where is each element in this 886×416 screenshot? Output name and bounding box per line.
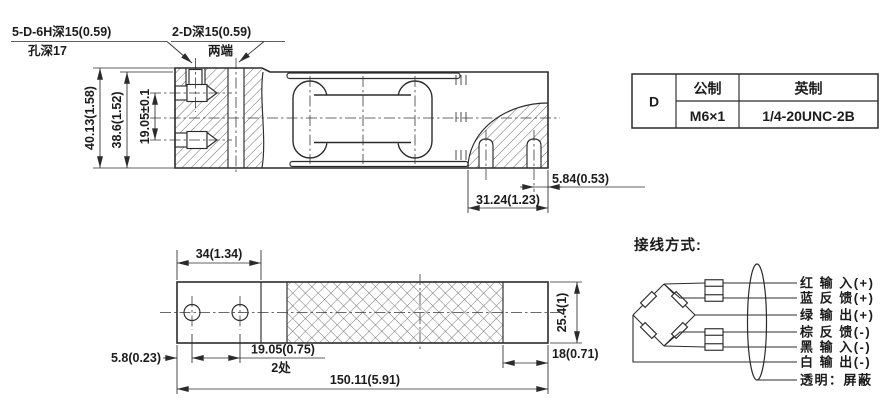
callout-end-holes: 2-D深15(0.59) 两端 <box>171 24 285 62</box>
wire-label-brown-feedback: 棕 反 馈(-) <box>799 325 871 340</box>
dim-body-height: 38.6(1.52) <box>110 92 124 149</box>
dim-edge-to-hole: 5.8(0.23) <box>111 351 161 365</box>
loadcell-drawing-page: 40.13(1.58) 38.6(1.52) 19.05±0.1 31.24(1… <box>0 0 886 416</box>
wheatstone-bridge <box>633 284 695 346</box>
dim-block-length: 34(1.34) <box>196 247 243 261</box>
dim-hole-spacing: 19.05(0.75) <box>251 343 315 357</box>
wiring-diagram: 接线方式: <box>633 236 874 388</box>
callout-end-holes-text: 2-D深15(0.59) <box>172 24 251 39</box>
cable-sheath-ellipse <box>748 264 767 380</box>
callout-tapped-holes-text: 5-D-6H深15(0.59) <box>12 24 111 39</box>
thread-spec-table: D 公制 英制 M6×1 1/4-20UNC-2B <box>632 74 878 128</box>
dim-total-length: 150.11(5.91) <box>330 373 400 387</box>
table-row-label: D <box>649 94 659 110</box>
table-imperial-value: 1/4-20UNC-2B <box>762 108 855 124</box>
dim-hole-offset: 31.24(1.23) <box>476 193 540 207</box>
drawing-canvas: 40.13(1.58) 38.6(1.52) 19.05±0.1 31.24(1… <box>0 0 886 416</box>
table-col-imperial: 英制 <box>794 81 823 97</box>
dim-total-height: 40.13(1.58) <box>83 86 97 150</box>
gauge-lead-marks <box>456 75 466 160</box>
wire-label-blue-feedback: 蓝 反 馈(+) <box>800 291 874 306</box>
callout-tapped-holes: 5-D-6H深15(0.59) 孔深17 <box>11 24 192 63</box>
side-view-drawing: 40.13(1.58) 38.6(1.52) 19.05±0.1 31.24(1… <box>11 24 645 213</box>
wire-label-white-output: 白 输 出(-) <box>800 355 871 370</box>
binocular-cutout <box>293 81 432 158</box>
wire-label-red-input: 红 输 入(+) <box>800 276 874 291</box>
table-col-metric: 公制 <box>694 81 722 97</box>
callout-hole-depth-text: 孔深17 <box>28 43 67 58</box>
table-metric-value: M6×1 <box>690 108 726 124</box>
callout-both-ends-text: 两端 <box>208 43 234 58</box>
dim-hole-to-edge: 5.84(0.53) <box>552 172 609 186</box>
dim-screw-spacing: 19.05±0.1 <box>138 89 152 145</box>
top-view-drawing: 34(1.34) 5.8(0.23) 19.05(0.75) 2处 150.11… <box>111 247 599 394</box>
wire-label-green-output: 绿 输 出(+) <box>800 308 874 323</box>
wire-label-shield: 透明：屏蔽 <box>800 373 873 388</box>
dim-width: 25.4(1) <box>555 293 569 333</box>
wire-white <box>633 315 797 362</box>
dim-hole-spacing-note: 2处 <box>271 360 291 375</box>
wire-label-black-input: 黑 输 入(-) <box>800 340 871 355</box>
wiring-title: 接线方式: <box>634 236 702 254</box>
dim-end-length: 18(0.71) <box>552 347 599 361</box>
